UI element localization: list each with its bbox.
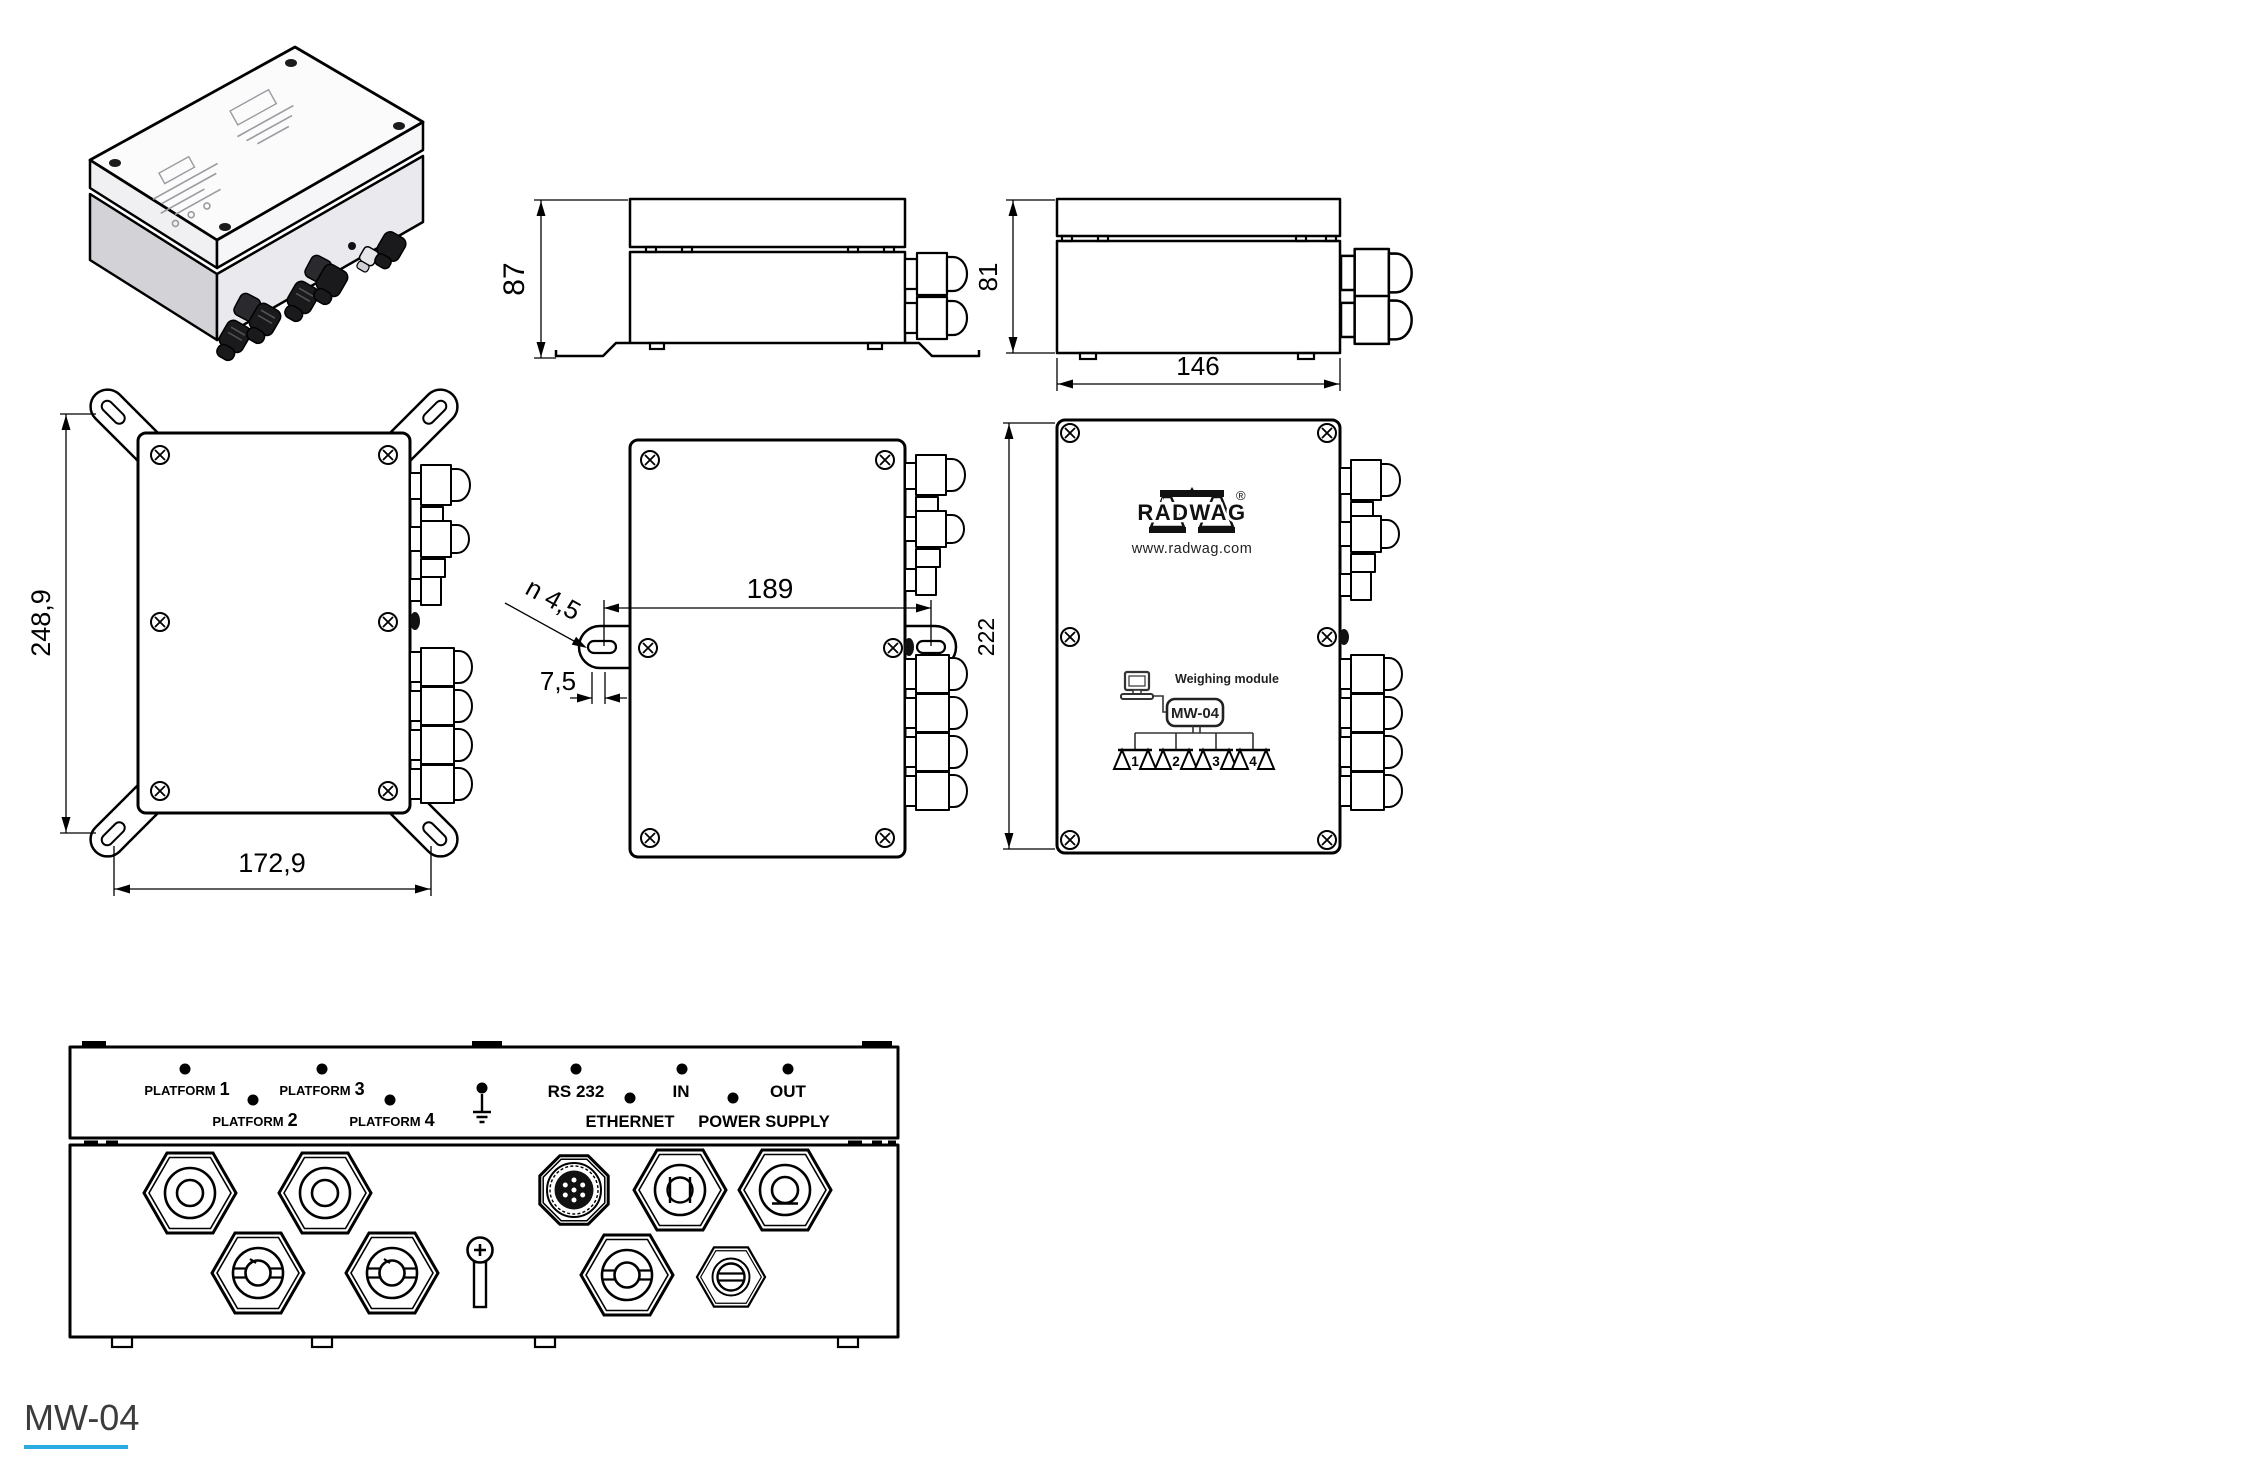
logo-website: www.radwag.com xyxy=(1131,541,1253,557)
dim-172-9: 172,9 xyxy=(238,848,306,878)
side-elevation-87-view: 87 xyxy=(498,199,979,358)
footer-model-label: MW-04 xyxy=(24,1397,139,1438)
isometric-view xyxy=(90,47,423,365)
drawing-page: 87 81 146 xyxy=(0,0,2257,1484)
dim-222: 222 xyxy=(973,618,999,656)
footer-underline xyxy=(24,1445,128,1449)
dim-7-5: 7,5 xyxy=(540,666,576,696)
platform-icon-2: 2 xyxy=(1172,754,1180,769)
logo-brand-text: RADWAG xyxy=(1137,500,1246,525)
rs232-m12-connector xyxy=(540,1156,608,1224)
diagram-caption: Weighing module xyxy=(1175,672,1279,686)
platform-icon-1: 1 xyxy=(1131,754,1139,769)
platform-icon-3: 3 xyxy=(1212,754,1220,769)
side-elevation-81-view: 81 146 xyxy=(973,199,1412,391)
label-out: OUT xyxy=(770,1082,807,1101)
dim-87: 87 xyxy=(498,262,531,295)
label-power-supply: POWER SUPPLY xyxy=(698,1113,829,1131)
dim-146: 146 xyxy=(1176,351,1219,381)
technical-drawing-canvas: 87 81 146 xyxy=(0,0,2257,1484)
dim-81: 81 xyxy=(973,263,1003,292)
bottom-connector-view: PLATFORM1 PLATFORM2 PLATFORM3 PLATFORM4 … xyxy=(70,1041,898,1347)
top-view-mounting-brackets: 248,9 172,9 xyxy=(26,383,472,896)
footer: MW-04 xyxy=(24,1397,139,1449)
computer-icon xyxy=(1121,672,1153,699)
diagram-module-label: MW-04 xyxy=(1171,705,1220,722)
front-panel-view: RADWAG ® www.radwag.com Weighing module … xyxy=(973,420,1402,853)
logo-registered-mark: ® xyxy=(1236,488,1246,503)
label-rs232: RS 232 xyxy=(548,1082,605,1101)
label-ethernet: ETHERNET xyxy=(586,1113,675,1131)
dim-248-9: 248,9 xyxy=(26,589,56,657)
back-view-mounting-holes: 189 n 4,5 7,5 xyxy=(505,440,967,857)
dim-hole: n 4,5 xyxy=(521,572,586,626)
platform-icon-4: 4 xyxy=(1249,754,1257,769)
dim-189: 189 xyxy=(747,573,794,604)
label-in: IN xyxy=(673,1082,690,1101)
